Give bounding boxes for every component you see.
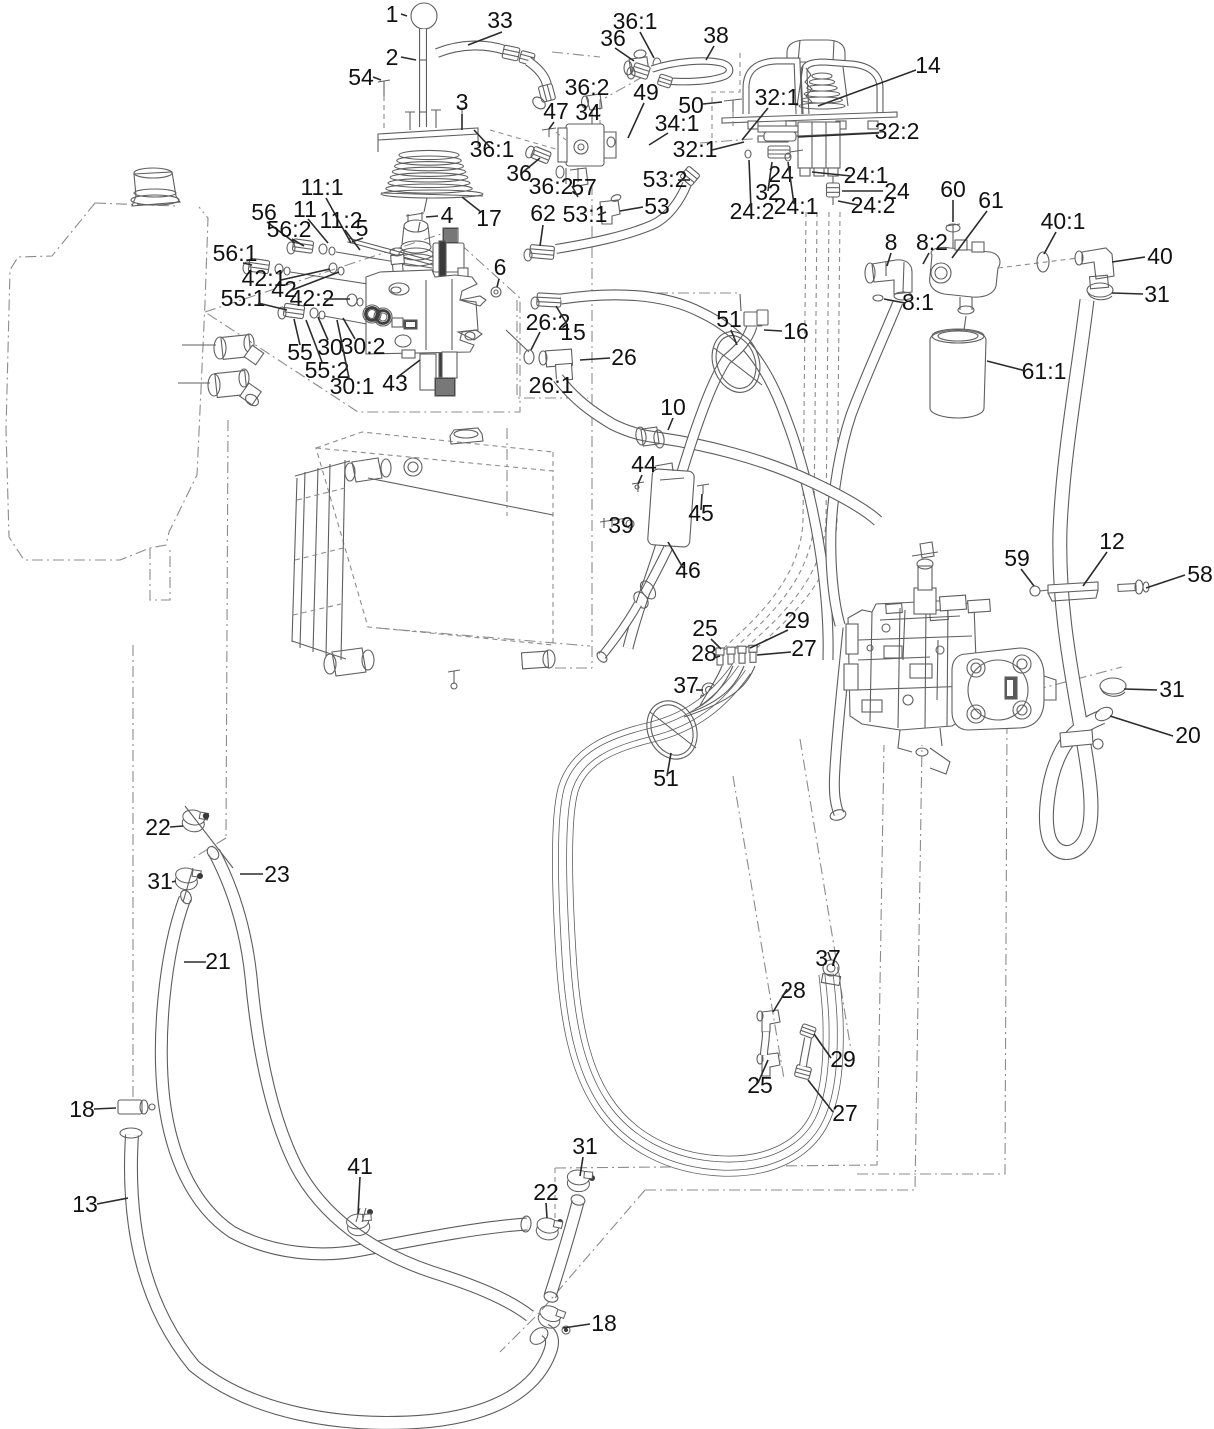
svg-text:32:1: 32:1	[673, 136, 718, 162]
svg-text:37: 37	[673, 672, 699, 698]
svg-text:53: 53	[644, 193, 670, 219]
svg-text:6: 6	[494, 254, 507, 280]
svg-text:30:2: 30:2	[341, 333, 386, 359]
svg-text:4: 4	[441, 202, 454, 228]
svg-text:58: 58	[1187, 561, 1213, 587]
svg-text:61: 61	[978, 187, 1004, 213]
svg-text:40: 40	[1147, 243, 1173, 269]
svg-text:25: 25	[692, 615, 718, 641]
svg-text:38: 38	[703, 22, 729, 48]
svg-text:26:1: 26:1	[529, 372, 574, 398]
svg-text:43: 43	[382, 370, 408, 396]
svg-text:55:1: 55:1	[221, 285, 266, 311]
svg-text:59: 59	[1004, 545, 1030, 571]
svg-text:17: 17	[476, 205, 502, 231]
svg-text:62: 62	[530, 200, 556, 226]
svg-text:8:2: 8:2	[916, 229, 948, 255]
svg-text:1: 1	[386, 1, 399, 27]
svg-text:47: 47	[543, 98, 569, 124]
svg-text:28: 28	[780, 977, 806, 1003]
svg-text:34: 34	[575, 99, 601, 125]
svg-text:31: 31	[147, 868, 173, 894]
svg-text:24:1: 24:1	[844, 162, 889, 188]
svg-text:23: 23	[264, 861, 290, 887]
svg-text:18: 18	[69, 1096, 95, 1122]
svg-text:12: 12	[1099, 528, 1125, 554]
svg-text:40:1: 40:1	[1041, 208, 1086, 234]
svg-text:24:1: 24:1	[774, 193, 819, 219]
svg-text:28: 28	[691, 640, 717, 666]
svg-text:31: 31	[572, 1133, 598, 1159]
svg-text:32:1: 32:1	[755, 84, 800, 110]
svg-text:34:1: 34:1	[655, 110, 700, 136]
svg-text:41: 41	[347, 1153, 373, 1179]
svg-text:57: 57	[571, 174, 597, 200]
svg-text:31: 31	[1159, 676, 1185, 702]
svg-text:5: 5	[356, 215, 369, 241]
svg-text:22: 22	[533, 1179, 559, 1205]
svg-text:32:2: 32:2	[875, 118, 920, 144]
svg-text:36:2: 36:2	[565, 74, 610, 100]
svg-text:56:2: 56:2	[267, 216, 312, 242]
svg-text:30:1: 30:1	[330, 373, 375, 399]
svg-text:29: 29	[784, 607, 810, 633]
svg-text:29: 29	[830, 1046, 856, 1072]
svg-text:36: 36	[600, 25, 626, 51]
svg-text:3: 3	[456, 89, 469, 115]
svg-text:44: 44	[631, 451, 657, 477]
svg-text:42:2: 42:2	[290, 285, 335, 311]
svg-text:31: 31	[1144, 281, 1170, 307]
svg-text:16: 16	[783, 318, 809, 344]
svg-text:26: 26	[611, 344, 637, 370]
svg-text:15: 15	[560, 319, 586, 345]
svg-text:27: 27	[832, 1100, 858, 1126]
svg-text:14: 14	[915, 52, 941, 78]
svg-text:21: 21	[205, 948, 231, 974]
svg-text:8: 8	[885, 229, 898, 255]
svg-text:56:1: 56:1	[213, 240, 258, 266]
svg-text:33: 33	[487, 7, 513, 33]
svg-text:27: 27	[791, 635, 817, 661]
svg-text:51: 51	[653, 765, 679, 791]
svg-text:54: 54	[348, 64, 374, 90]
svg-text:39: 39	[608, 512, 634, 538]
svg-text:61:1: 61:1	[1022, 358, 1067, 384]
svg-text:18: 18	[591, 1310, 617, 1336]
svg-text:53:2: 53:2	[643, 166, 688, 192]
svg-text:60: 60	[940, 176, 966, 202]
svg-text:8:1: 8:1	[902, 289, 934, 315]
svg-text:37: 37	[815, 945, 841, 971]
svg-text:10: 10	[660, 394, 686, 420]
svg-text:49: 49	[633, 79, 659, 105]
svg-text:51: 51	[716, 306, 742, 332]
svg-text:2: 2	[386, 44, 399, 70]
svg-text:36:2: 36:2	[529, 173, 574, 199]
svg-text:36:1: 36:1	[470, 136, 515, 162]
svg-text:22: 22	[145, 814, 171, 840]
svg-text:25: 25	[747, 1072, 773, 1098]
svg-text:24:2: 24:2	[730, 198, 775, 224]
svg-text:20: 20	[1175, 722, 1201, 748]
svg-text:13: 13	[72, 1191, 98, 1217]
